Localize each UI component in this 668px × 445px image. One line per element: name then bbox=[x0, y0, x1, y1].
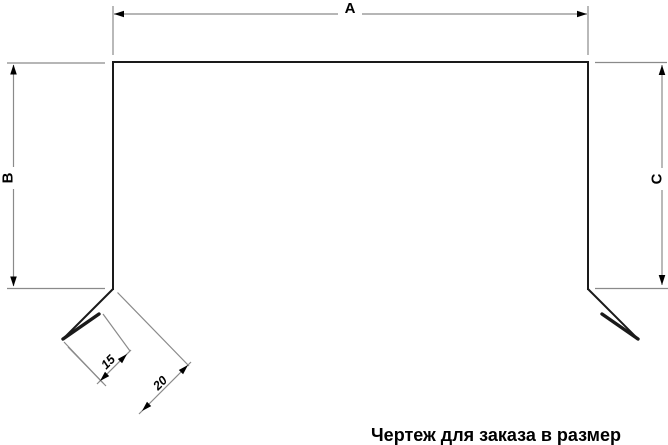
drawing-caption: Чертеж для заказа в размер bbox=[371, 425, 621, 445]
drawing-background bbox=[0, 0, 668, 445]
drawing-canvas: A B C 15 20 Чертеж для заказа в размер bbox=[0, 0, 668, 445]
dim-a-label: A bbox=[345, 0, 356, 17]
dim-b-label: B bbox=[0, 172, 17, 183]
dim-c-label: C bbox=[649, 173, 666, 184]
technical-drawing-page: A B C 15 20 Чертеж для заказа в размер bbox=[0, 0, 668, 445]
